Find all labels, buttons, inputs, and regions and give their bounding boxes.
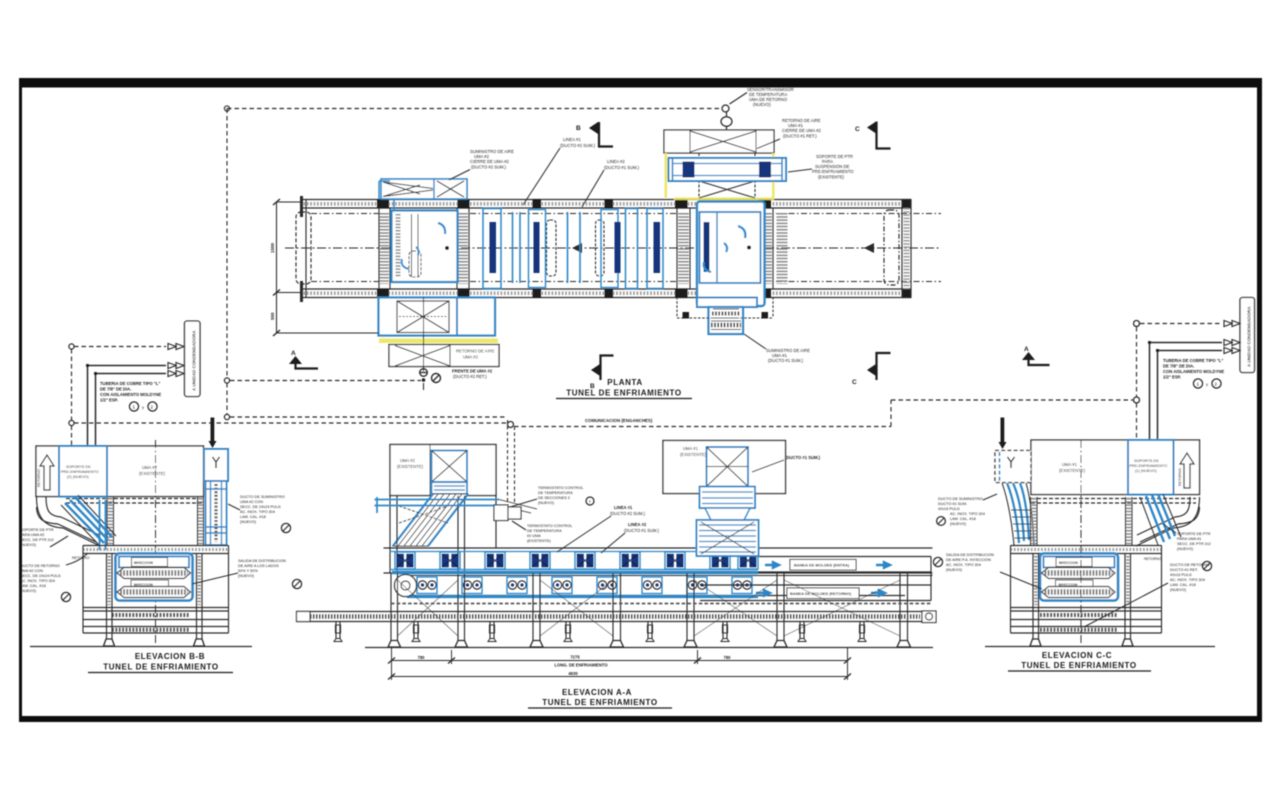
svg-text:SOPORTE DE: SOPORTE DE: [1134, 459, 1159, 463]
svg-text:UMA #2: UMA #2: [400, 458, 416, 463]
svg-text:(EXISTENTE): (EXISTENTE): [680, 452, 707, 457]
svg-text:LINEA #1: LINEA #1: [563, 137, 581, 142]
svg-text:AC. INOX. TIPO 304: AC. INOX. TIPO 304: [1170, 578, 1205, 582]
svg-text:(NUEVO): (NUEVO): [753, 102, 771, 107]
svg-text:(DUCTO #1 SUM.): (DUCTO #1 SUM.): [768, 358, 804, 363]
svg-text:CON AISLAMIENTO MOLDYNE: CON AISLAMIENTO MOLDYNE: [1163, 369, 1224, 374]
svg-text:DUCTO #1 RET.: DUCTO #1 RET.: [1170, 568, 1198, 572]
svg-text:SALIDA DE DISTRIBUCION: SALIDA DE DISTRIBUCION: [238, 559, 286, 563]
svg-text:(DUCTO #1 RET.): (DUCTO #1 RET.): [783, 134, 817, 139]
svg-text:SECC. DE PTR 2x2: SECC. DE PTR 2x2: [1177, 542, 1211, 546]
svg-text:DE 7/8" DE DIA.: DE 7/8" DE DIA.: [100, 387, 131, 392]
svg-text:(NUEVO): (NUEVO): [238, 574, 255, 578]
svg-text:C: C: [855, 126, 860, 133]
svg-text:TERMOSTATO CONTROL: TERMOSTATO CONTROL: [538, 486, 583, 490]
svg-text:AC. INOX. TIPO 304: AC. INOX. TIPO 304: [20, 579, 55, 583]
svg-text:COMUNICACION (ENGANCHES): COMUNICACION (ENGANCHES): [585, 418, 653, 423]
svg-text:LAM. CAL. #18: LAM. CAL. #18: [950, 517, 976, 521]
svg-text:PARA UMA #2: PARA UMA #2: [20, 533, 44, 537]
svg-text:LAM. CAL. #18: LAM. CAL. #18: [1170, 583, 1196, 587]
svg-text:TUNEL DE ENFRIAMIENTO: TUNEL DE ENFRIAMIENTO: [566, 389, 681, 398]
svg-text:(DUCTO #1 SUM.): (DUCTO #1 SUM.): [604, 165, 640, 170]
svg-text:(2) (NUEVO): (2) (NUEVO): [67, 475, 89, 479]
svg-text:LONG. DE ENFRIAMIENTO: LONG. DE ENFRIAMIENTO: [554, 663, 608, 668]
svg-text:7275: 7275: [570, 655, 580, 660]
svg-text:PLANTA: PLANTA: [607, 378, 642, 387]
svg-text:(NUEVO): (NUEVO): [950, 522, 967, 526]
svg-text:PRE-ENFRIAMIENTO: PRE-ENFRIAMIENTO: [61, 470, 99, 474]
svg-text:UMA #2 CON: UMA #2 CON: [20, 569, 43, 573]
svg-text:SALIDA DE DISTRIBUCION: SALIDA DE DISTRIBUCION: [946, 553, 994, 557]
svg-text:780: 780: [724, 655, 732, 660]
svg-text:DE AIRE P.A. INYECCION: DE AIRE P.A. INYECCION: [946, 558, 991, 562]
svg-text:B: B: [576, 125, 581, 132]
svg-text:1/2" ESP.: 1/2" ESP.: [100, 398, 118, 403]
svg-text:(EXISTENTE): (EXISTENTE): [818, 175, 845, 180]
svg-text:BANDA DE MOLDES (ENTRA): BANDA DE MOLDES (ENTRA): [794, 563, 850, 568]
svg-text:LINEA #2: LINEA #2: [628, 522, 647, 527]
svg-text:AC. INOX. TIPO 304: AC. INOX. TIPO 304: [946, 563, 981, 567]
svg-text:y: y: [1206, 382, 1208, 387]
svg-text:ELEVACION A-A: ELEVACION A-A: [562, 688, 632, 697]
svg-text:PARA UMA #1: PARA UMA #1: [1177, 537, 1201, 541]
svg-text:(EXISTENTE): (EXISTENTE): [397, 464, 424, 469]
svg-text:(NUEVO): (NUEVO): [20, 543, 37, 547]
svg-text:SECC. DE 24x24 PULG: SECC. DE 24x24 PULG: [240, 505, 281, 509]
svg-text:LAM. CAL. #18: LAM. CAL. #18: [240, 515, 266, 519]
svg-text:40x16 PULG: 40x16 PULG: [1170, 573, 1192, 577]
svg-text:50% Y 50%: 50% Y 50%: [238, 569, 258, 573]
svg-text:INYECCION: INYECCION: [134, 561, 153, 565]
svg-text:RETORNO: RETORNO: [37, 469, 41, 487]
svg-text:LINEA #1: LINEA #1: [614, 505, 633, 510]
svg-text:(NUEVO): (NUEVO): [20, 589, 37, 593]
svg-text:(NUEVO): (NUEVO): [538, 501, 555, 505]
svg-text:DE 7/8" DE DIA.: DE 7/8" DE DIA.: [1163, 364, 1194, 369]
svg-text:A: A: [291, 350, 296, 357]
svg-text:LINEA #2: LINEA #2: [607, 159, 625, 164]
svg-text:SECC. DE 24x24 PULG: SECC. DE 24x24 PULG: [20, 574, 61, 578]
svg-text:AC. INOX. TIPO 304: AC. INOX. TIPO 304: [950, 512, 985, 516]
svg-text:(DUCTO #2 SUM.): (DUCTO #2 SUM.): [471, 165, 507, 170]
svg-text:UMA #2: UMA #2: [463, 355, 479, 360]
svg-text:PRE-ENFRIAMIENTO: PRE-ENFRIAMIENTO: [1130, 464, 1168, 468]
svg-text:TUBERIA DE COBRE TIPO "L": TUBERIA DE COBRE TIPO "L": [1163, 358, 1223, 363]
svg-text:INYECCION: INYECCION: [1059, 561, 1078, 565]
svg-text:(EXISTENTE): (EXISTENTE): [527, 539, 551, 543]
svg-text:DE SECCIONES 2: DE SECCIONES 2: [538, 496, 570, 500]
svg-text:y: y: [142, 405, 144, 410]
svg-text:CIERRE DE UMA #2: CIERRE DE UMA #2: [470, 159, 510, 164]
svg-text:(1) (NUEVO): (1) (NUEVO): [1135, 469, 1157, 473]
svg-text:CON AISLAMIENTO MOLDYNE: CON AISLAMIENTO MOLDYNE: [100, 392, 161, 397]
svg-text:LAM. CAL. #18: LAM. CAL. #18: [20, 584, 46, 588]
svg-text:DE TEMPERATURA: DE TEMPERATURA: [538, 491, 573, 495]
svg-text:RETORNO: RETORNO: [1178, 468, 1182, 486]
svg-text:UMA #1: UMA #1: [683, 446, 699, 451]
svg-text:TUBERIA DE COBRE TIPO "L": TUBERIA DE COBRE TIPO "L": [100, 381, 160, 386]
svg-text:(EXISTENTE): (EXISTENTE): [1059, 468, 1086, 473]
svg-text:SOPORTE DE: SOPORTE DE: [66, 465, 91, 469]
svg-text:BANDA DE MOLDES (RETORNO): BANDA DE MOLDES (RETORNO): [790, 591, 852, 596]
svg-text:(NUEVO): (NUEVO): [1177, 547, 1194, 551]
svg-text:TUNEL DE ENFRIAMIENTO: TUNEL DE ENFRIAMIENTO: [1021, 661, 1136, 670]
svg-text:500: 500: [270, 312, 275, 320]
svg-text:RETORNO: RETORNO: [1144, 557, 1162, 561]
svg-text:(DUCTO #1 SUM.): (DUCTO #1 SUM.): [624, 528, 660, 533]
svg-text:C: C: [852, 379, 857, 386]
svg-text:(EXISTENTE): (EXISTENTE): [139, 471, 166, 476]
svg-text:40x16 PULG: 40x16 PULG: [938, 507, 960, 511]
svg-text:TUNEL DE ENFRIAMIENTO: TUNEL DE ENFRIAMIENTO: [103, 663, 218, 672]
svg-text:4930: 4930: [568, 671, 578, 676]
svg-text:(NUEVO): (NUEVO): [946, 568, 963, 572]
svg-text:SOPORTE DE PTR: SOPORTE DE PTR: [1177, 532, 1211, 536]
svg-text:(DUCTO #1 SUM.): (DUCTO #1 SUM.): [785, 455, 821, 460]
svg-text:(NUEVO): (NUEVO): [240, 520, 257, 524]
svg-text:A UNIDAD CONDENSADORA: A UNIDAD CONDENSADORA: [1247, 306, 1252, 367]
svg-text:UMA #2 CON: UMA #2 CON: [240, 500, 263, 504]
svg-text:1/2" ESP.: 1/2" ESP.: [1163, 375, 1181, 380]
svg-text:UMA #1: UMA #1: [1062, 462, 1078, 467]
svg-text:DUCTO DE SUMINISTRO: DUCTO DE SUMINISTRO: [938, 497, 983, 501]
svg-text:(DUCTO #2 SUM.): (DUCTO #2 SUM.): [560, 143, 596, 148]
svg-text:A: A: [1024, 346, 1029, 353]
svg-text:RETORNO: RETORNO: [72, 556, 90, 560]
svg-text:ELEVACION B-B: ELEVACION B-B: [135, 652, 205, 661]
svg-text:1500: 1500: [270, 242, 275, 253]
svg-text:PRE-ENFRIAMIENTO: PRE-ENFRIAMIENTO: [812, 169, 854, 174]
svg-text:(DUCTO #2 SUM.): (DUCTO #2 SUM.): [610, 511, 646, 516]
svg-text:FRENTE DE UMA #2: FRENTE DE UMA #2: [452, 369, 493, 374]
svg-text:TERMOSTATO CONTROL: TERMOSTATO CONTROL: [527, 524, 572, 528]
svg-text:A UNIDAD CONDENSADORA: A UNIDAD CONDENSADORA: [192, 330, 197, 391]
svg-text:DUCTO DE SUMINISTRO: DUCTO DE SUMINISTRO: [240, 495, 285, 499]
svg-text:ELEVACION C-C: ELEVACION C-C: [1042, 651, 1112, 660]
svg-text:AC. INOX. TIPO 304: AC. INOX. TIPO 304: [240, 510, 275, 514]
svg-text:SECC. DE PTR 2x2: SECC. DE PTR 2x2: [20, 538, 54, 542]
svg-text:CIERRE DE UMA #2: CIERRE DE UMA #2: [782, 128, 822, 133]
svg-text:DE TEMPERATURA: DE TEMPERATURA: [527, 529, 562, 533]
svg-text:(DUCTO #2 RET.): (DUCTO #2 RET.): [453, 374, 487, 379]
svg-text:DUCTO DE RETORNO: DUCTO DE RETORNO: [20, 564, 60, 568]
svg-text:TUNEL DE ENFRIAMIENTO: TUNEL DE ENFRIAMIENTO: [542, 698, 657, 707]
svg-text:DUCTO #1 SUM.: DUCTO #1 SUM.: [938, 502, 967, 506]
svg-text:780: 780: [418, 655, 426, 660]
svg-text:RETORNO DE AIRE: RETORNO DE AIRE: [456, 349, 495, 354]
svg-text:DE AIRE A LOS LADOS: DE AIRE A LOS LADOS: [238, 564, 279, 568]
svg-text:(NUEVO): (NUEVO): [1170, 588, 1187, 592]
svg-text:#2 UMA: #2 UMA: [527, 534, 541, 538]
svg-text:SOPORTE DE PTR: SOPORTE DE PTR: [20, 528, 54, 532]
